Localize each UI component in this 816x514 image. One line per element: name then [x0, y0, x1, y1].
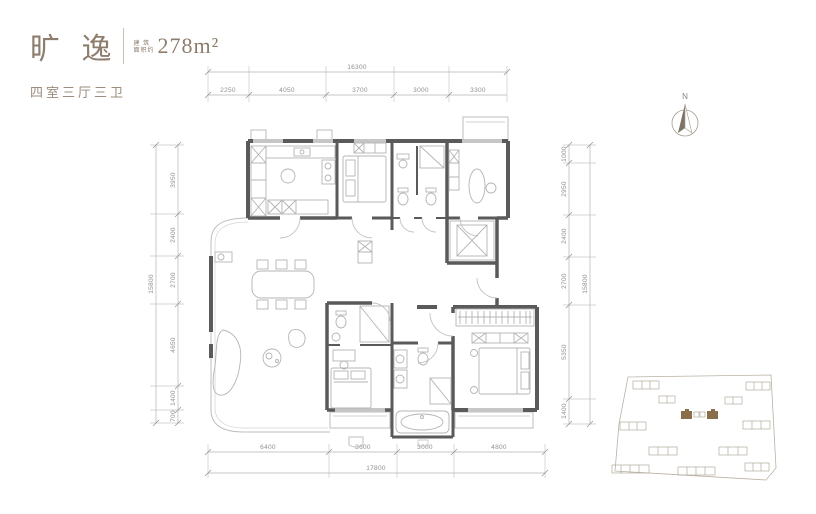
site-buildings — [612, 381, 770, 475]
master-bathroom-furniture — [394, 348, 451, 433]
dim-left-seg: 2400 — [170, 227, 177, 243]
dim-top-seg: 3700 — [352, 87, 368, 94]
kitchen-furniture — [251, 146, 335, 216]
dim-bottom-total: 17800 — [366, 465, 386, 472]
dim-bottom-seg: 4800 — [491, 444, 507, 451]
dim-left-seg: 4650 — [170, 337, 177, 353]
dim-left-seg: 2700 — [170, 272, 177, 288]
bedroom2-furniture — [343, 143, 386, 202]
dim-right-seg: 2950 — [561, 181, 568, 197]
area-label-line1: 建 筑 — [134, 41, 155, 48]
dim-top-seg: 3300 — [470, 87, 486, 94]
dim-left-seg: 3950 — [170, 172, 177, 188]
area-block: 建 筑 面积约 278m² — [134, 33, 220, 59]
walls — [211, 141, 537, 437]
dimension-right: 1000 2950 2400 2700 5350 1400 15800 — [561, 142, 596, 427]
compass-north-label: N — [682, 92, 688, 101]
compass-needle-light — [685, 104, 692, 133]
dim-left-seg: 700 — [170, 410, 177, 422]
dimension-bottom: 6400 3600 3000 4800 17800 — [205, 444, 548, 478]
compass: N — [672, 92, 698, 136]
site-key-plan — [612, 375, 776, 480]
page-title: 旷 逸 — [30, 24, 119, 68]
bedroom3-furniture — [331, 306, 389, 408]
dim-top-seg: 2250 — [220, 87, 236, 94]
living-furniture — [213, 252, 305, 395]
dim-right-seg: 1000 — [561, 146, 568, 162]
floorplan-page: 旷 逸 建 筑 面积约 278m² 四室三厅三卫 16300 2250 4050… — [0, 0, 816, 514]
elevator-shaft — [450, 221, 494, 260]
dim-left-seg: 1400 — [170, 390, 177, 406]
dimension-left: 3950 2400 2700 4650 1400 700 15800 — [148, 142, 184, 426]
dim-left-total: 15800 — [148, 274, 155, 294]
site-unit-highlight — [681, 409, 718, 419]
dim-right-seg: 5350 — [561, 344, 568, 360]
area-label-line2: 面积约 — [134, 48, 155, 55]
title-block: 旷 逸 建 筑 面积约 278m² 四室三厅三卫 — [30, 24, 219, 101]
layout-type: 四室三厅三卫 — [30, 82, 219, 101]
dimension-top: 16300 2250 4050 3700 3000 3300 — [205, 64, 510, 102]
compass-needle-dark — [678, 104, 685, 133]
dim-right-seg: 2700 — [561, 273, 568, 289]
dim-right-total: 15800 — [582, 274, 589, 294]
hall-cabinet — [358, 241, 372, 263]
dim-top-total: 16300 — [347, 64, 367, 71]
windows — [253, 141, 523, 410]
title-divider — [123, 28, 124, 64]
area-value: 278m² — [158, 33, 220, 59]
dim-top-seg: 3000 — [413, 87, 429, 94]
dining-furniture — [252, 260, 314, 309]
dim-right-seg: 2400 — [561, 228, 568, 244]
study-furniture — [449, 150, 496, 203]
master-bedroom-furniture — [456, 309, 534, 394]
balcony-outline — [211, 117, 533, 447]
bathroom-top-furniture — [397, 146, 444, 205]
site-unit-middle — [694, 412, 705, 417]
dim-top-seg: 4050 — [279, 87, 295, 94]
area-label: 建 筑 面积约 — [134, 41, 155, 55]
dim-right-seg: 1400 — [561, 403, 568, 419]
dim-bottom-seg: 3000 — [417, 444, 433, 451]
dim-bottom-seg: 6400 — [260, 444, 276, 451]
